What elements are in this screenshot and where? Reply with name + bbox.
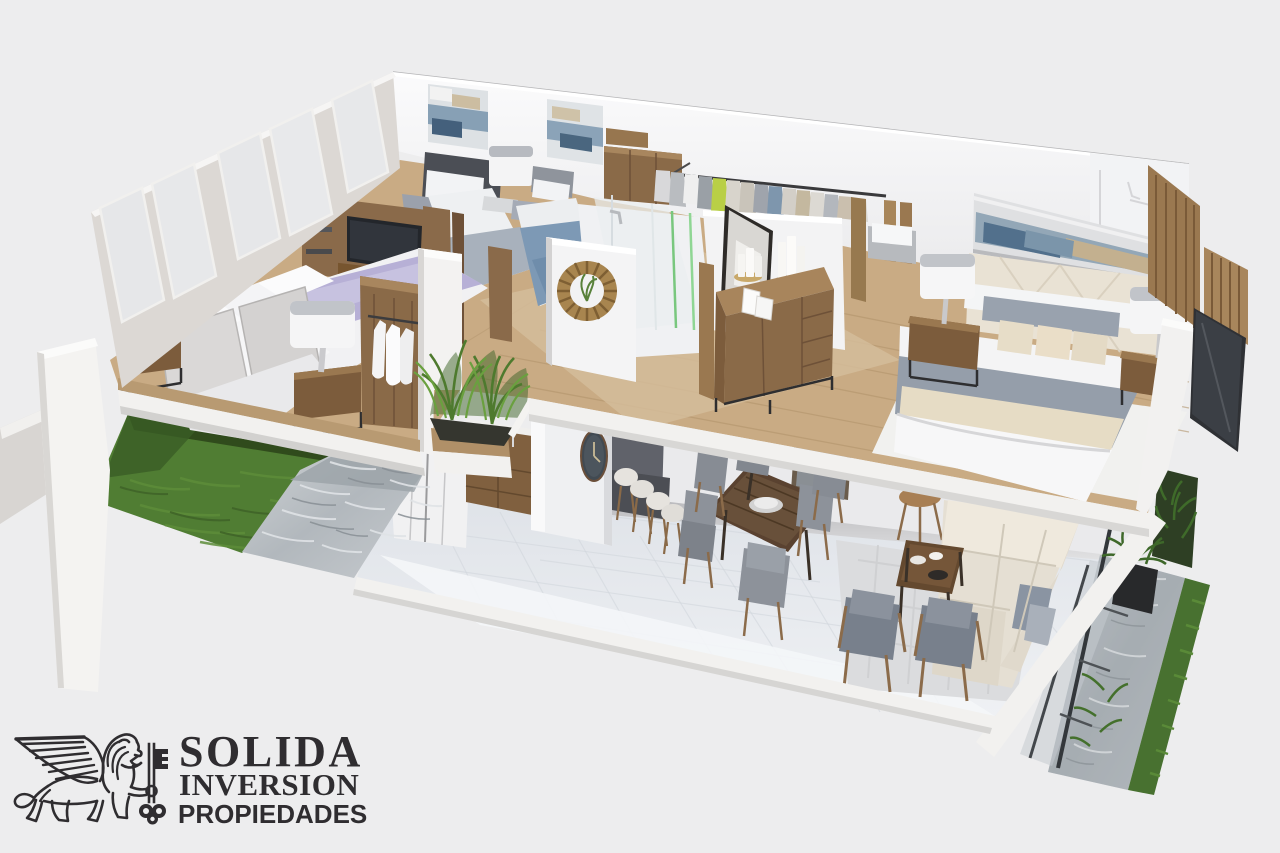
svg-text:PROPIEDADES: PROPIEDADES (178, 799, 367, 829)
svg-text:INVERSION: INVERSION (179, 767, 359, 802)
